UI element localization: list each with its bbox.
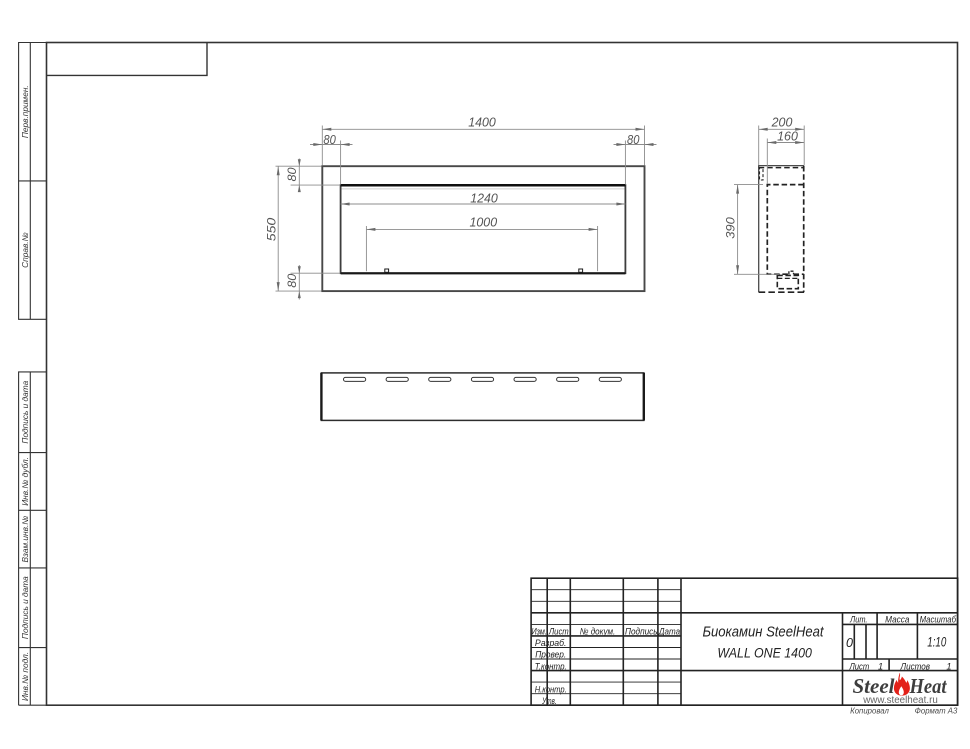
svg-text:1000: 1000: [470, 215, 498, 229]
svg-text:Инв.№ подл.: Инв.№ подл.: [20, 652, 30, 701]
svg-text:Формат А3: Формат А3: [915, 706, 958, 715]
svg-text:Н.контр.: Н.контр.: [535, 684, 567, 694]
svg-text:Утв.: Утв.: [541, 696, 556, 706]
svg-text:Лист: Лист: [548, 627, 569, 637]
svg-text:Инв.№ дубл.: Инв.№ дубл.: [20, 457, 30, 506]
svg-text:Изм.: Изм.: [531, 627, 547, 637]
svg-text:Провер.: Провер.: [535, 650, 566, 660]
svg-text:Взам.инв.№: Взам.инв.№: [20, 516, 30, 563]
svg-text:Справ.№: Справ.№: [20, 232, 30, 267]
svg-text:Перв.примен.: Перв.примен.: [20, 85, 30, 138]
svg-text:Лит.: Лит.: [849, 615, 867, 625]
svg-text:www.steelheat.ru: www.steelheat.ru: [862, 695, 938, 706]
svg-text:80: 80: [323, 133, 335, 147]
svg-text:550: 550: [264, 217, 278, 241]
svg-text:WALL ONE 1400: WALL ONE 1400: [717, 645, 812, 661]
svg-text:№ докум.: № докум.: [580, 627, 616, 637]
svg-text:Подпись и дата: Подпись и дата: [20, 576, 30, 639]
svg-text:1: 1: [878, 662, 883, 672]
svg-text:390: 390: [724, 217, 738, 239]
svg-text:0: 0: [846, 636, 853, 650]
svg-text:Листов: Листов: [900, 662, 931, 672]
svg-text:Подпись и дата: Подпись и дата: [20, 380, 30, 443]
svg-text:80: 80: [627, 133, 639, 147]
svg-text:Масштаб: Масштаб: [920, 615, 957, 625]
svg-text:1: 1: [946, 662, 951, 672]
svg-text:Дата: Дата: [658, 627, 680, 637]
svg-text:160: 160: [777, 129, 798, 143]
svg-text:Биокамин SteelHeat: Биокамин SteelHeat: [703, 624, 825, 641]
svg-text:1:10: 1:10: [927, 634, 946, 649]
svg-text:80: 80: [287, 167, 299, 182]
svg-text:200: 200: [771, 115, 793, 129]
svg-text:80: 80: [287, 273, 299, 288]
svg-text:Т.контр.: Т.контр.: [535, 661, 567, 671]
svg-text:Разраб.: Разраб.: [535, 638, 567, 648]
svg-text:Подпись: Подпись: [625, 627, 658, 637]
svg-text:Копировал: Копировал: [850, 706, 889, 715]
svg-text:Лист: Лист: [849, 662, 870, 672]
svg-text:1240: 1240: [470, 191, 498, 205]
svg-text:Масса: Масса: [885, 615, 909, 625]
svg-text:1400: 1400: [468, 115, 496, 129]
